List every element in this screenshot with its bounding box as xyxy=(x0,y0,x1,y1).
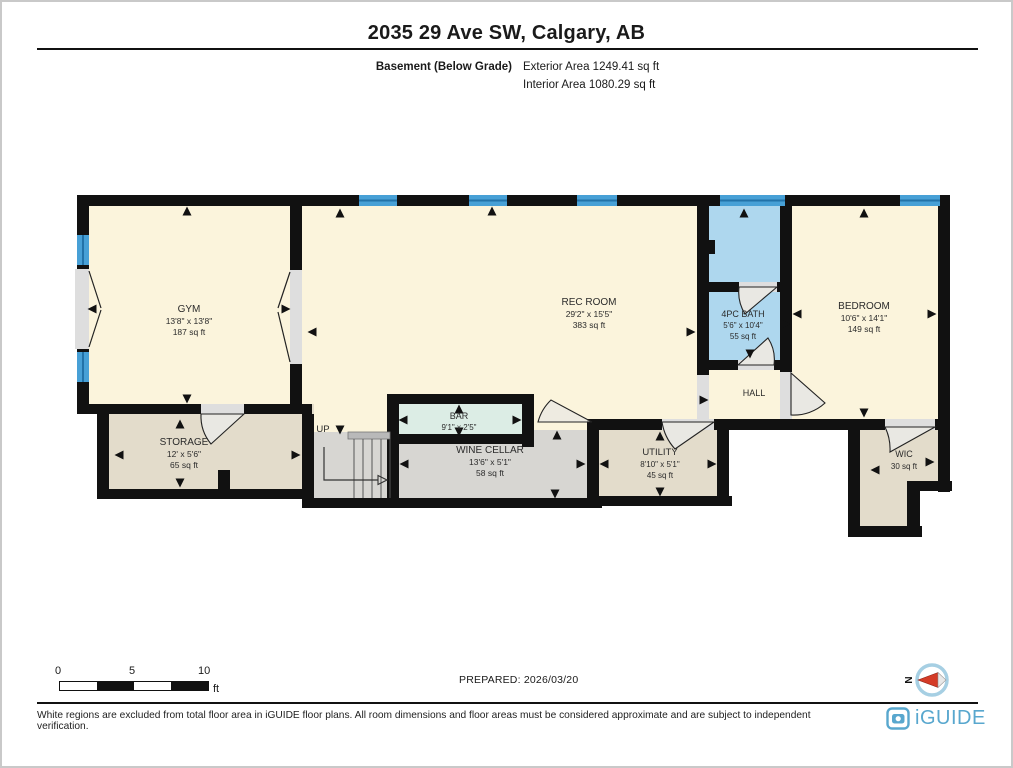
svg-text:65 sq ft: 65 sq ft xyxy=(170,460,199,470)
floorplan-page: 2035 29 Ave SW, Calgary, AB Basement (Be… xyxy=(0,0,1013,768)
svg-text:55 sq ft: 55 sq ft xyxy=(730,332,757,341)
floorplan-drawing: GYM 13'8" x 13'8" 187 sq ft REC ROOM 29'… xyxy=(2,2,1013,768)
svg-text:383 sq ft: 383 sq ft xyxy=(573,320,606,330)
svg-text:12' x 5'6": 12' x 5'6" xyxy=(167,449,201,459)
footer-divider xyxy=(37,702,978,704)
iguide-wordmark: iGUIDE xyxy=(915,707,986,730)
svg-text:10'6" x 14'1": 10'6" x 14'1" xyxy=(841,313,888,323)
scale-unit-label: ft xyxy=(213,683,219,695)
room-stairs xyxy=(312,432,399,507)
iguide-logo: iGUIDE xyxy=(886,706,986,731)
svg-text:30 sq ft: 30 sq ft xyxy=(891,462,918,471)
scale-bar xyxy=(59,681,209,691)
svg-text:13'8" x 13'8": 13'8" x 13'8" xyxy=(166,316,213,326)
svg-text:45 sq ft: 45 sq ft xyxy=(647,471,674,480)
stairs-up-label: UP xyxy=(316,424,329,435)
svg-text:8'10" x 5'1": 8'10" x 5'1" xyxy=(640,460,680,469)
bar-label: BAR xyxy=(450,411,469,421)
scale-tick-10: 10 xyxy=(198,665,210,677)
scale-tick-0: 0 xyxy=(55,665,61,677)
storage-label: STORAGE xyxy=(160,437,209,448)
bedroom-label: BEDROOM xyxy=(838,301,890,312)
compass-north-label: N xyxy=(905,676,915,683)
prepared-date: PREPARED: 2026/03/20 xyxy=(459,674,578,686)
hall-label: HALL xyxy=(743,388,766,398)
svg-text:13'6" x 5'1": 13'6" x 5'1" xyxy=(469,457,511,467)
gym-label: GYM xyxy=(178,304,201,315)
scale-tick-5: 5 xyxy=(129,665,135,677)
wic-label: WIC xyxy=(895,449,913,459)
wine-cellar-label: WINE CELLAR xyxy=(456,445,524,456)
svg-text:187 sq ft: 187 sq ft xyxy=(173,327,206,337)
svg-text:29'2" x 15'5": 29'2" x 15'5" xyxy=(566,309,613,319)
bath-label: 4PC BATH xyxy=(721,309,764,319)
compass-icon: N xyxy=(905,657,957,703)
room-fills xyxy=(77,195,950,532)
rec-room-label: REC ROOM xyxy=(562,297,617,308)
utility-label: UTILITY xyxy=(642,447,678,458)
svg-text:58 sq ft: 58 sq ft xyxy=(476,468,505,478)
svg-text:5'6" x 10'4": 5'6" x 10'4" xyxy=(723,321,763,330)
iguide-camera-icon xyxy=(886,706,911,731)
svg-text:9'1" x 2'5": 9'1" x 2'5" xyxy=(442,423,477,432)
disclaimer-text: White regions are excluded from total fl… xyxy=(37,710,837,732)
svg-text:149 sq ft: 149 sq ft xyxy=(848,324,881,334)
